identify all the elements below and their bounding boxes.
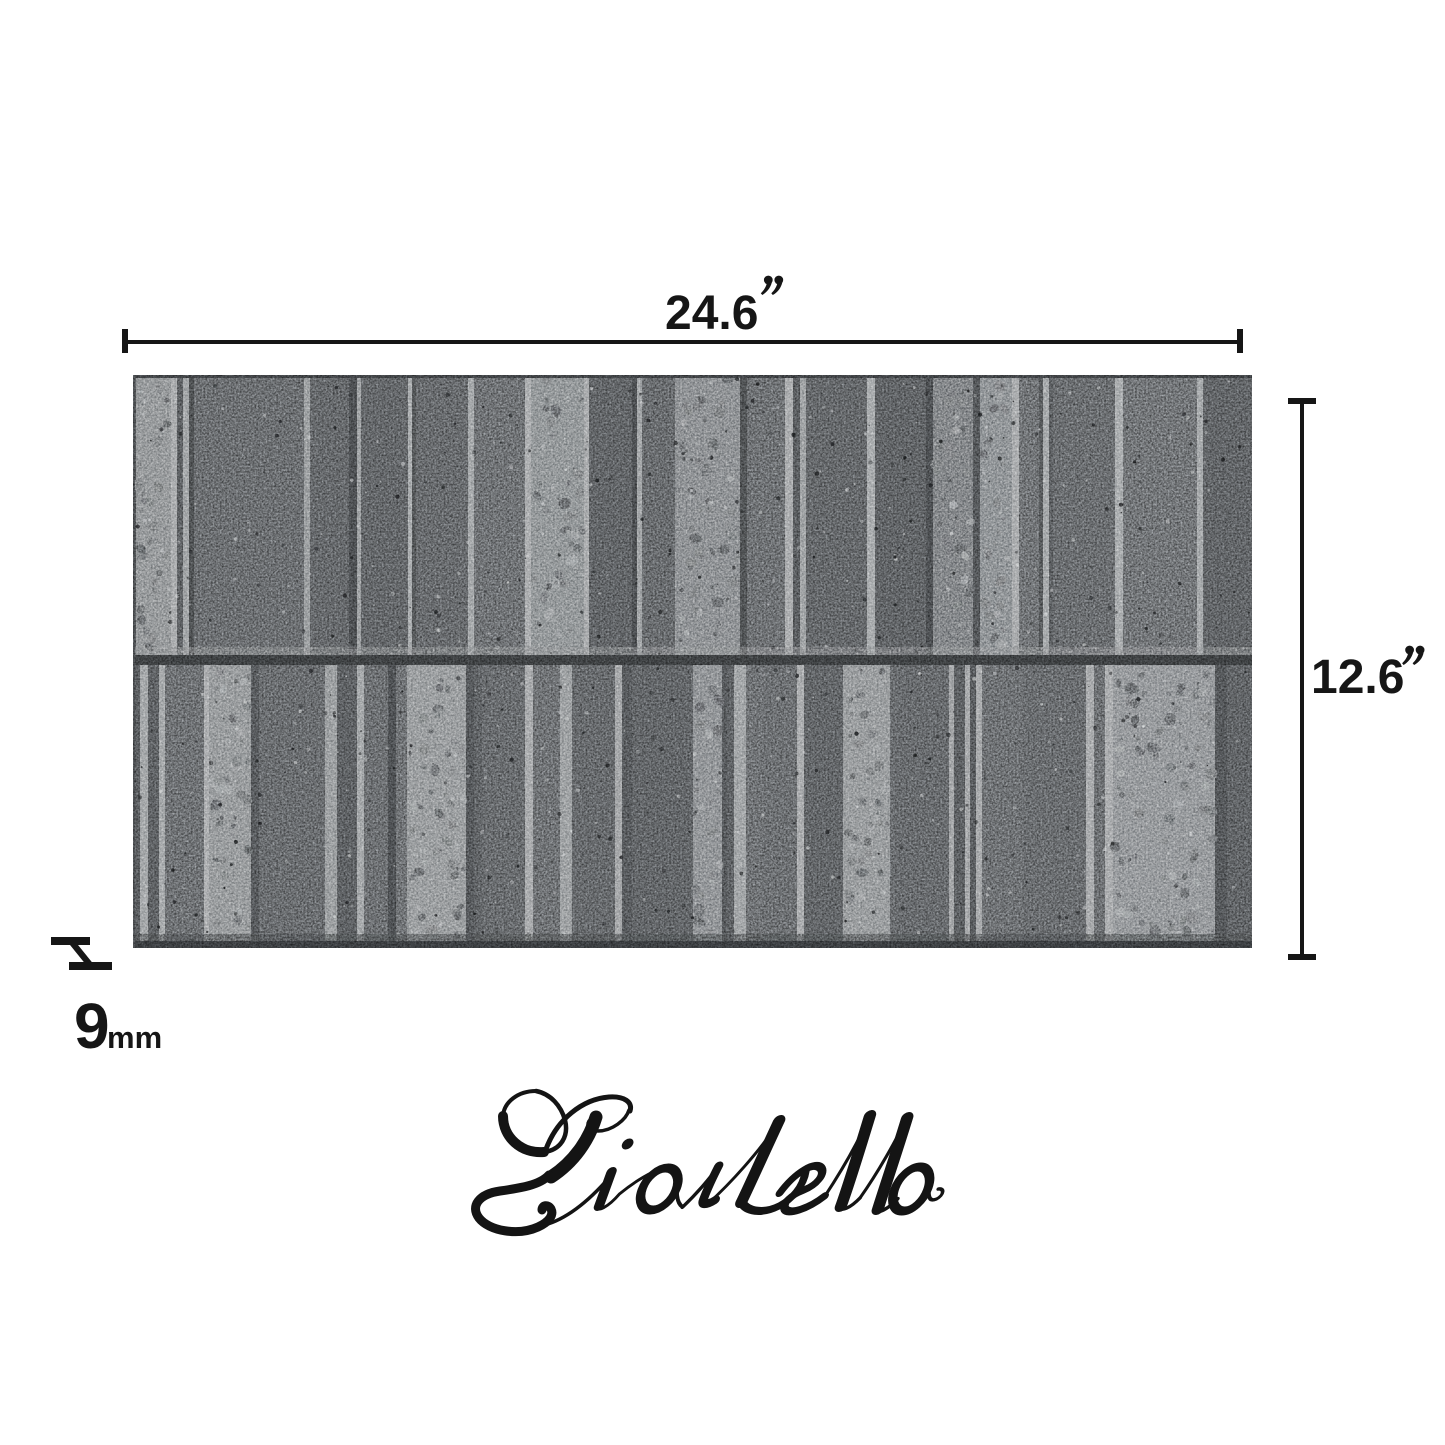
svg-text:24.6: 24.6 — [665, 287, 758, 340]
svg-text:9: 9 — [74, 990, 110, 1062]
svg-text:12.6: 12.6 — [1311, 651, 1404, 704]
svg-text:mm: mm — [107, 1020, 162, 1055]
